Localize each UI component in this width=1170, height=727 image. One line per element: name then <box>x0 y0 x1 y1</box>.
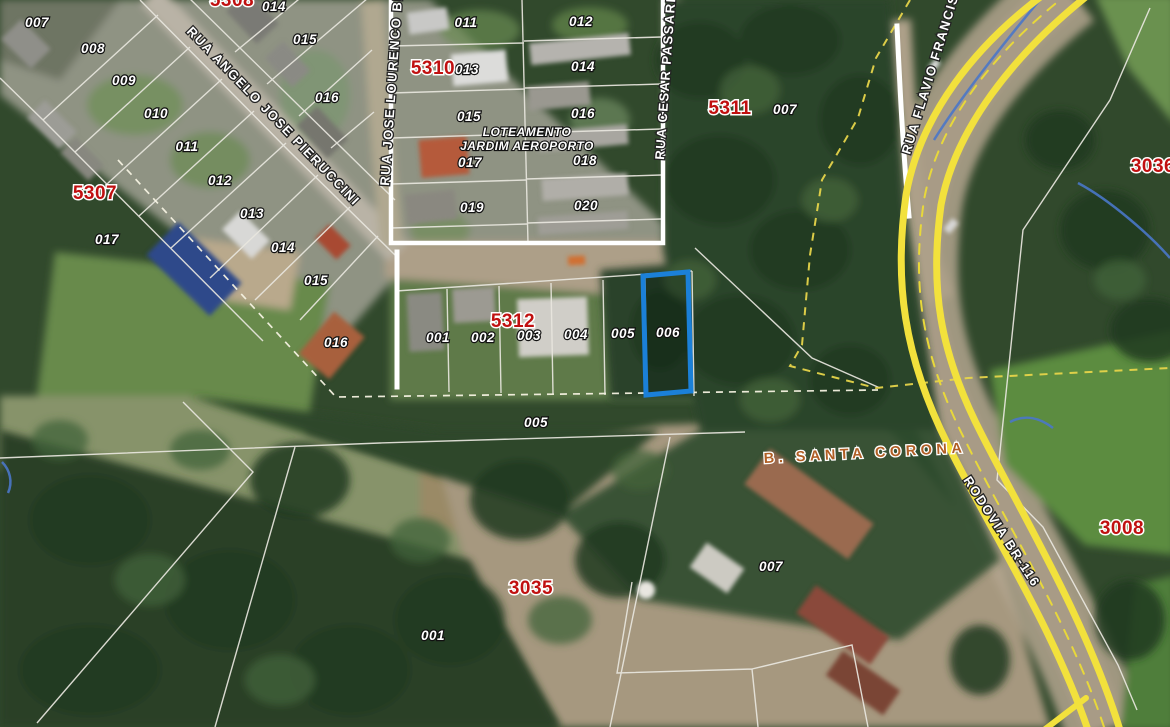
lot-number-label: 019 <box>460 200 484 215</box>
block-number-label: 5312 <box>491 311 535 332</box>
block-number-label: 3035 <box>509 578 553 599</box>
lot-number-label: 020 <box>574 198 598 213</box>
lot-number-label: 009 <box>112 73 136 88</box>
block-number-label: 5307 <box>73 183 117 204</box>
map-viewport[interactable]: 0070080090100110120130170140150160140150… <box>0 0 1170 727</box>
lot-number-label: 001 <box>421 628 445 643</box>
lot-number-label: 017 <box>458 155 483 170</box>
lot-number-label: 007 <box>759 559 784 574</box>
subdivision-name-line1: LOTEAMENTO <box>483 125 572 139</box>
lot-number-label: 001 <box>426 330 450 345</box>
block-number-label: 5310 <box>411 58 455 79</box>
lot-number-label: 015 <box>457 109 481 124</box>
lot-number-label: 012 <box>208 173 232 188</box>
lot-number-label: 015 <box>304 273 328 288</box>
lot-number-label: 007 <box>773 102 798 117</box>
lot-number-label: 004 <box>564 327 588 342</box>
lot-number-label: 012 <box>569 14 593 29</box>
block-number-label: 3008 <box>1100 518 1144 539</box>
lot-number-label: 013 <box>455 62 479 77</box>
lot-number-label: 011 <box>454 15 477 30</box>
lot-number-label: 017 <box>95 232 120 247</box>
lot-number-label: 018 <box>573 153 597 168</box>
subdivision-name-line2: JARDIM AEROPORTO <box>460 139 594 153</box>
lot-number-label: 015 <box>293 32 317 47</box>
lot-number-label: 008 <box>81 41 105 56</box>
lot-number-label: 005 <box>524 415 548 430</box>
lot-number-label: 016 <box>571 106 595 121</box>
lot-number-label: 016 <box>315 90 339 105</box>
lot-number-label: 014 <box>262 0 286 14</box>
lot-number-label: 014 <box>571 59 595 74</box>
block-number-label: 3036 <box>1131 156 1170 177</box>
lot-number-label: 007 <box>25 15 50 30</box>
block-number-label: 5308 <box>210 0 254 11</box>
lot-number-label: 005 <box>611 326 635 341</box>
lot-number-label: 011 <box>175 139 198 154</box>
lot-number-label: 016 <box>324 335 348 350</box>
lot-number-label: 014 <box>271 240 295 255</box>
lot-number-label: 010 <box>144 106 168 121</box>
lot-number-label: 002 <box>471 330 495 345</box>
lot-number-label: 006 <box>656 325 680 340</box>
cadastral-satellite-map[interactable]: 0070080090100110120130170140150160140150… <box>0 0 1170 727</box>
block-number-label: 5311 <box>708 98 751 119</box>
lot-number-label: 013 <box>240 206 264 221</box>
